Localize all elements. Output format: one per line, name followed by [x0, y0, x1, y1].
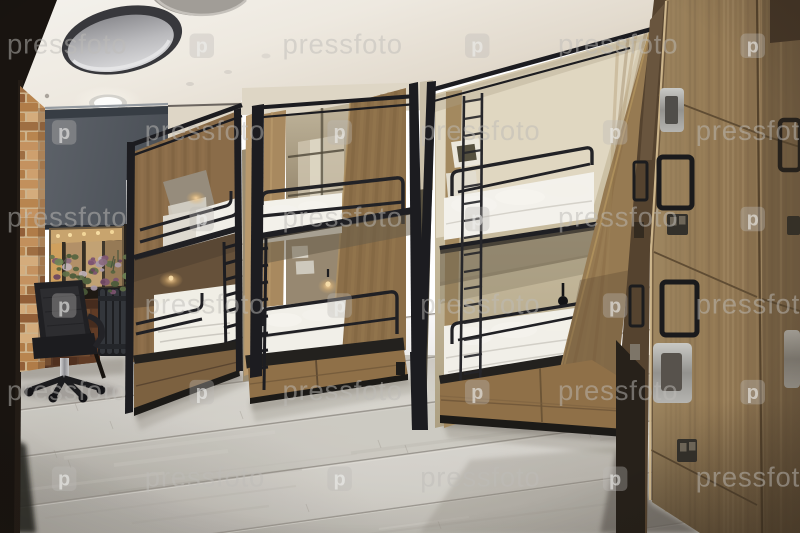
svg-text:p: p [333, 122, 345, 144]
svg-text:p: p [747, 209, 759, 231]
svg-text:p: p [196, 382, 208, 404]
svg-text:p: p [333, 469, 345, 491]
svg-text:p: p [58, 469, 70, 491]
svg-text:p: p [747, 36, 759, 58]
svg-text:p: p [58, 295, 70, 317]
svg-text:pressfoto: pressfoto [558, 375, 678, 406]
svg-text:pressfoto: pressfoto [145, 288, 265, 319]
svg-text:pressfoto: pressfoto [7, 29, 127, 60]
svg-text:pressfoto: pressfoto [145, 462, 265, 493]
svg-text:p: p [471, 36, 483, 58]
svg-text:pressfoto: pressfoto [558, 202, 678, 233]
svg-text:pressfoto: pressfoto [558, 29, 678, 60]
svg-text:pressfoto: pressfoto [283, 29, 403, 60]
svg-text:p: p [609, 122, 621, 144]
svg-text:p: p [58, 122, 70, 144]
svg-text:p: p [471, 382, 483, 404]
svg-text:p: p [609, 469, 621, 491]
svg-text:p: p [196, 36, 208, 58]
svg-text:pressfoto: pressfoto [420, 288, 540, 319]
svg-text:pressfoto: pressfoto [696, 462, 800, 493]
svg-text:pressfoto: pressfoto [145, 115, 265, 146]
svg-text:pressfoto: pressfoto [420, 115, 540, 146]
svg-text:pressfoto: pressfoto [283, 202, 403, 233]
svg-text:p: p [609, 295, 621, 317]
svg-text:p: p [333, 295, 345, 317]
svg-text:pressfoto: pressfoto [696, 115, 800, 146]
svg-text:p: p [471, 209, 483, 231]
svg-text:pressfoto: pressfoto [283, 375, 403, 406]
svg-text:pressfoto: pressfoto [420, 462, 540, 493]
svg-text:pressfoto: pressfoto [7, 375, 127, 406]
svg-text:pressfoto: pressfoto [696, 288, 800, 319]
svg-text:p: p [196, 209, 208, 231]
svg-text:p: p [747, 382, 759, 404]
svg-text:pressfoto: pressfoto [7, 202, 127, 233]
